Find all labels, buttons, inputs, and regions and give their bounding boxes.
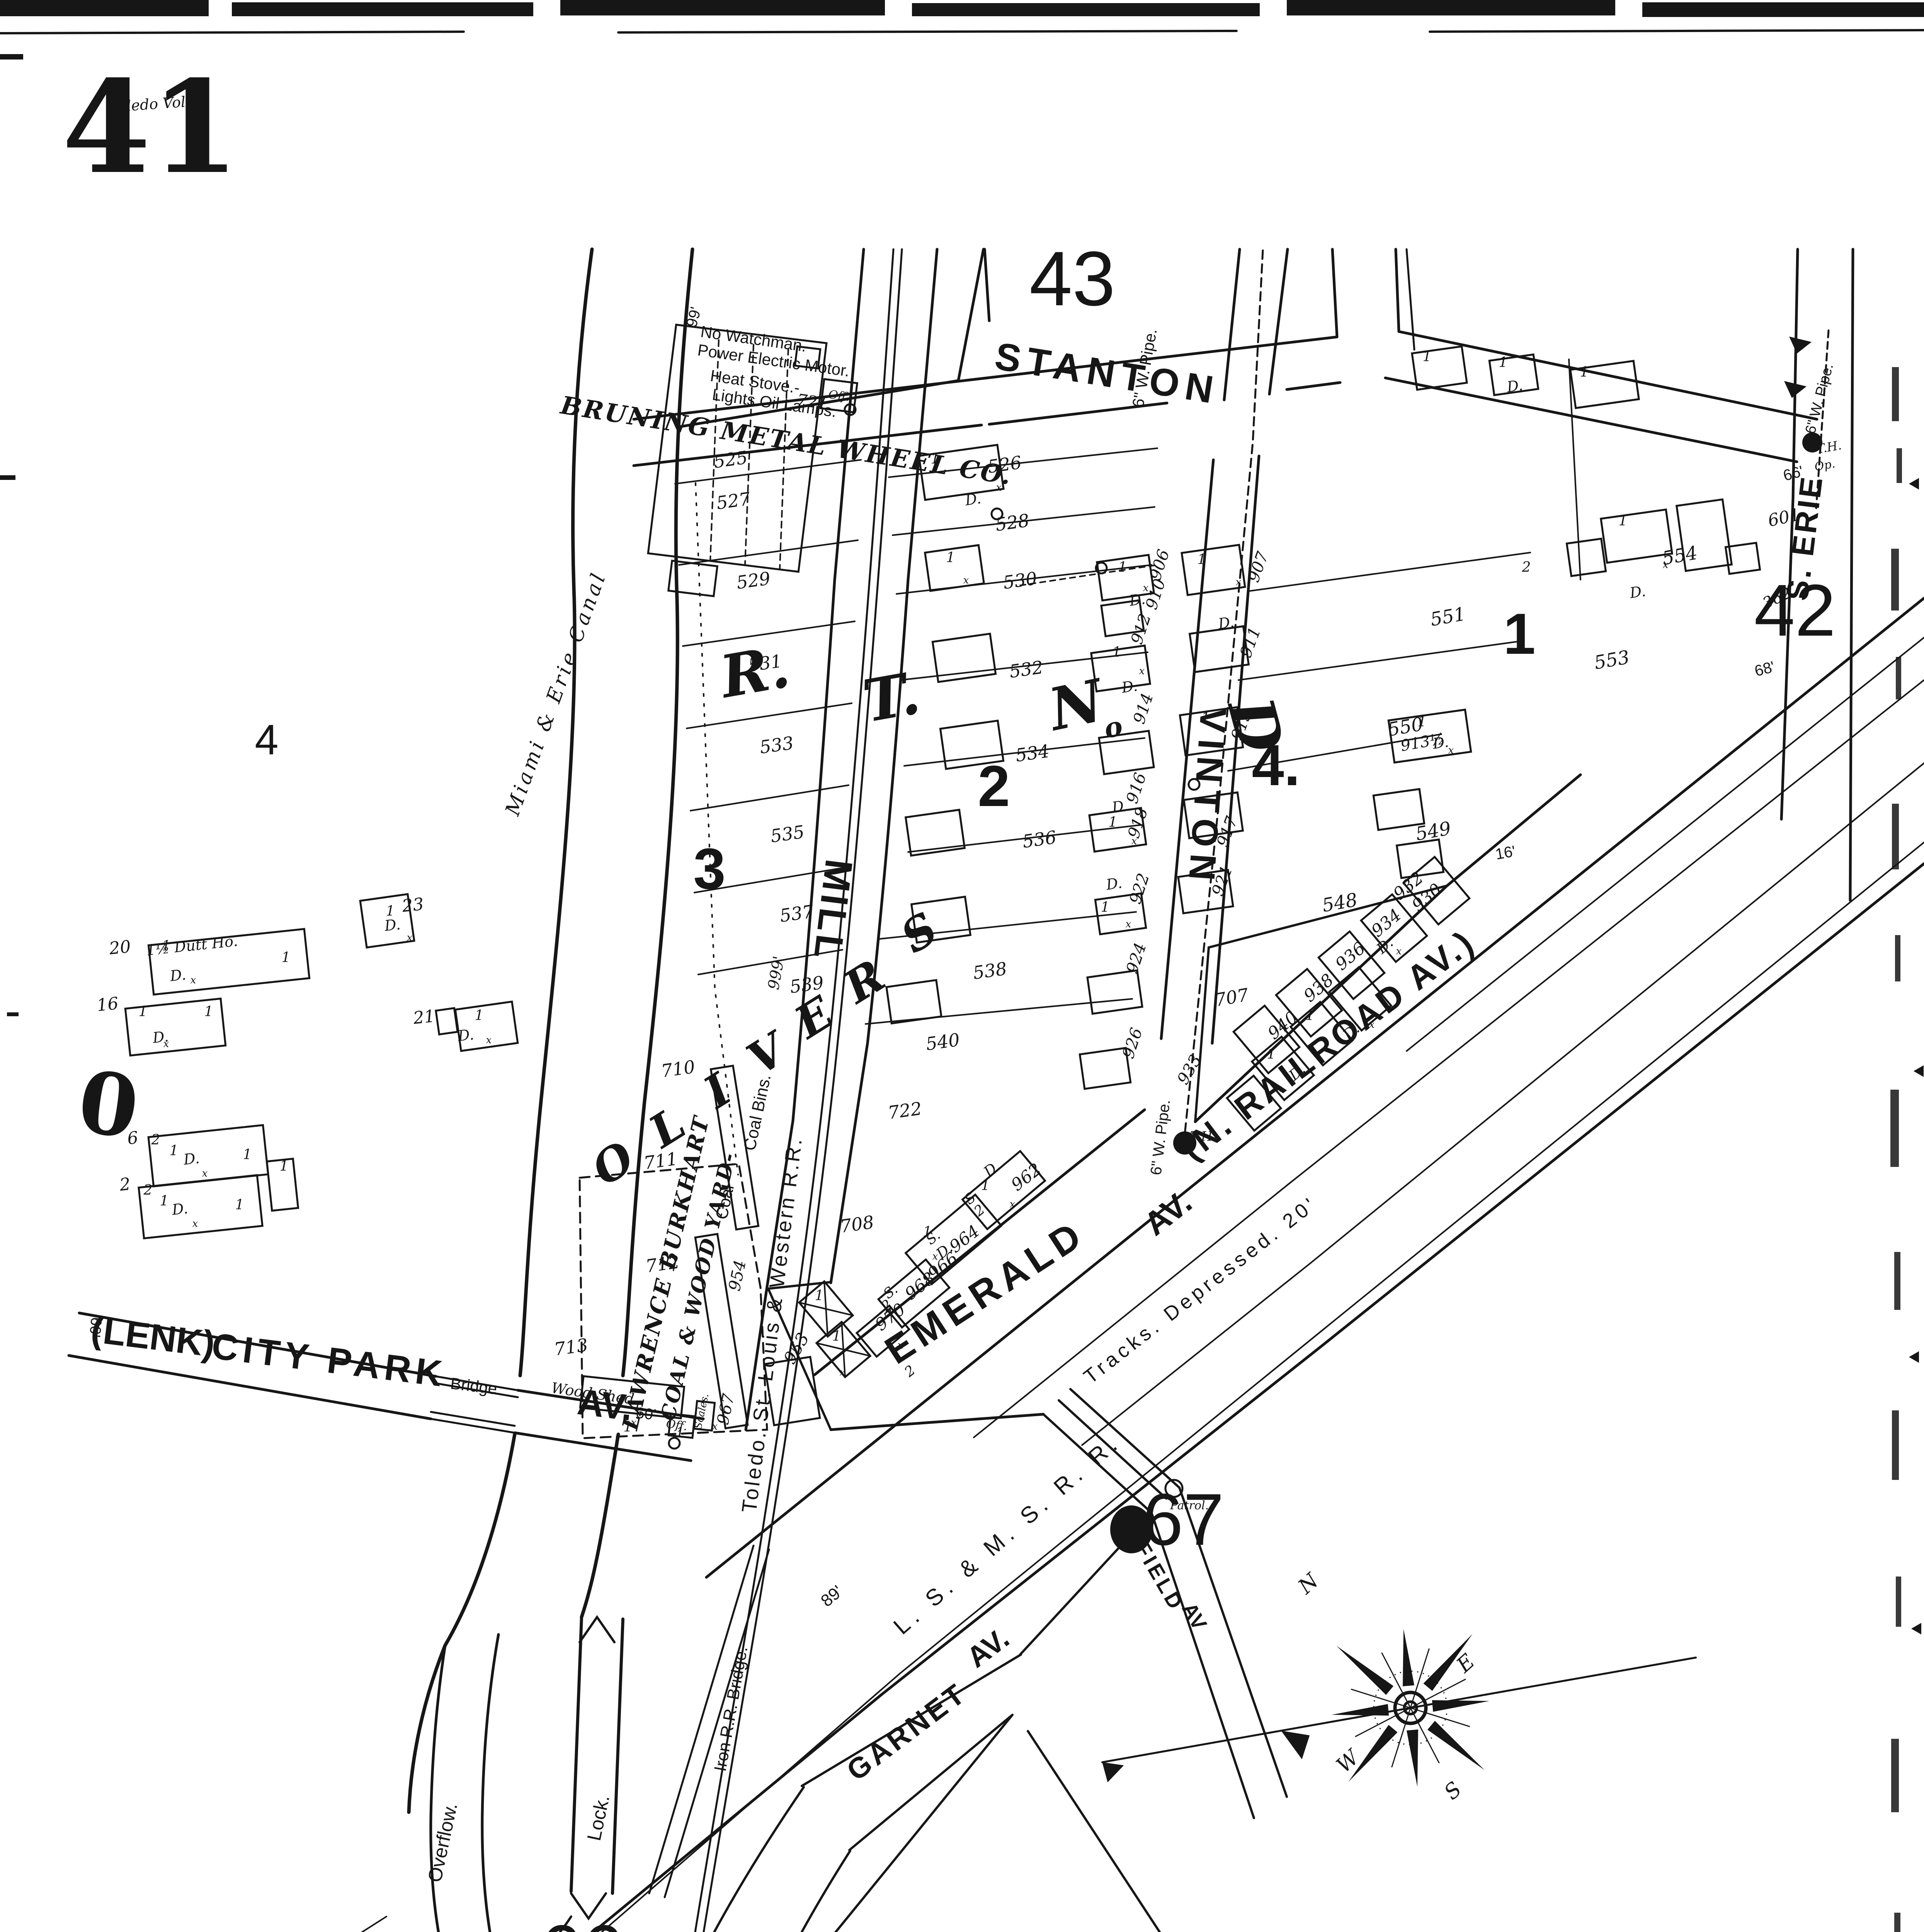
sheet-number-41: 41 <box>62 52 239 202</box>
story-count-1: 1 <box>931 451 940 467</box>
dwelling-d12: D. <box>169 966 187 985</box>
house-912: 912 <box>1127 611 1155 646</box>
window-x-mark: x <box>1126 918 1131 930</box>
window-x-mark: x <box>1010 1199 1016 1210</box>
sheet-ref-66: 66 <box>540 1910 624 1932</box>
map-line <box>1569 359 1580 580</box>
map-line <box>571 1617 614 1918</box>
dwelling-d7: D. <box>1431 733 1450 752</box>
lot-538: 538 <box>972 958 1008 983</box>
dim-89: 89' <box>817 1582 846 1611</box>
dutt-house: 1½ Dutt Ho. <box>145 932 238 959</box>
story-count-1: 1 <box>1267 1046 1276 1062</box>
scan-edge-artifact <box>912 3 1260 16</box>
map-line <box>1385 378 1797 462</box>
dwelling-d17: D. <box>171 1200 189 1218</box>
street-garnet: GARNET <box>840 1676 973 1787</box>
map-line <box>1020 565 1157 585</box>
window-x-mark: x <box>932 1251 938 1262</box>
map-line <box>1407 638 1924 1051</box>
scan-edge-artifact <box>1896 1577 1901 1627</box>
story-count-1: 1 <box>1418 714 1427 730</box>
scan-edge-artifact <box>0 54 23 60</box>
window-x-mark: x <box>191 975 196 986</box>
map-line <box>1396 249 1399 332</box>
story-count-1: 1 <box>1118 560 1127 575</box>
story-count-1: 1 <box>1499 355 1508 371</box>
window-x-mark: x <box>1448 745 1454 756</box>
margin-arrow-icon <box>1914 1065 1924 1077</box>
map-line <box>657 249 893 1932</box>
building-footprint <box>436 1008 458 1034</box>
building-footprint <box>1567 539 1606 576</box>
canal-overflow: Overflow. <box>424 1801 461 1884</box>
story-count-1: 1 <box>832 1328 841 1344</box>
story-count-1: 1 <box>204 1004 213 1020</box>
map-line <box>1850 249 1853 900</box>
building-footprint <box>1412 346 1467 389</box>
block-number-2: 2 <box>978 753 1010 818</box>
house-922: 922 <box>1126 871 1153 906</box>
dwelling-d15: D. <box>457 1026 475 1044</box>
small-circle-symbol <box>669 1438 680 1449</box>
house-962: 962 <box>1007 1160 1045 1195</box>
story-count-1: 1 <box>1580 364 1589 380</box>
house-924: 924 <box>1123 940 1150 976</box>
lot-548: 548 <box>1320 889 1359 917</box>
lot-722: 722 <box>887 1098 923 1123</box>
house-20: 20 <box>108 937 132 959</box>
scan-edge-artifact <box>0 0 209 16</box>
window-x-mark: x <box>1236 577 1242 588</box>
dwelling-d3: D. <box>1120 677 1139 696</box>
dim-68ft: 68' <box>1753 658 1777 680</box>
dim-16ft: 16' <box>1494 843 1517 863</box>
scan-edge-artifact <box>1891 1739 1899 1812</box>
street-city-park: CITY PARK <box>209 1325 449 1395</box>
building-footprint <box>1087 970 1142 1014</box>
map-line <box>1399 332 1817 419</box>
house-938: 938 <box>1300 970 1337 1006</box>
scan-edge-artifact <box>0 475 15 480</box>
dwelling-d11: D. <box>980 1157 1003 1181</box>
story-count-1: 1 <box>282 950 291 966</box>
map-reference-dot <box>1802 432 1822 452</box>
lot-708: 708 <box>839 1211 875 1237</box>
map-line <box>985 249 989 321</box>
lot-527: 527 <box>715 488 752 514</box>
margin-arrow-icon <box>1911 1623 1921 1634</box>
house-6: 6 <box>126 1128 139 1149</box>
scan-edge-artifact <box>1892 804 1899 869</box>
lot-713: 713 <box>553 1334 589 1360</box>
block-letter-N: N <box>1042 666 1111 745</box>
dim-999: 999' <box>765 955 788 991</box>
hydrant-flag-icon <box>1789 337 1812 354</box>
rr-toledo-stl-western: Toledo. St. Louis & Western R.R. <box>738 1135 807 1514</box>
story-count-2: 2 <box>1522 560 1531 575</box>
lot-532: 532 <box>1008 656 1045 682</box>
lot-711: 711 <box>643 1148 679 1173</box>
story-count-1: 1 <box>162 938 171 954</box>
margin-arrow-icon <box>1909 1351 1919 1363</box>
story-count-2: 2 <box>143 1182 153 1198</box>
hydrant-op-erie: Op. <box>1813 457 1836 474</box>
scan-edge-artifact <box>1894 1252 1900 1310</box>
scan-edge-artifact <box>1897 448 1902 483</box>
dwelling-d6: D. <box>1105 874 1123 893</box>
story-count-1: 1 <box>475 1008 484 1024</box>
dwelling-d1: D. <box>964 490 982 509</box>
scan-edge-artifact <box>232 2 533 16</box>
map-line <box>0 30 1924 33</box>
story-count-1: 1 <box>139 1004 148 1020</box>
building-footprint <box>886 980 941 1023</box>
scan-edge-artifact <box>1892 367 1899 421</box>
story-count-1: 1 <box>243 1147 252 1163</box>
dim-60ft-w: 60' <box>86 1316 105 1338</box>
lot-533: 533 <box>759 732 795 758</box>
map-line <box>571 1617 623 1893</box>
scan-edge-artifact <box>7 1012 19 1016</box>
lot-553: 553 <box>1592 646 1631 674</box>
lot-534: 534 <box>1014 740 1051 766</box>
compass-direction-w: W <box>1332 1744 1365 1777</box>
sanborn-map-canvas: 41Toledo Vol.143426667STANTONVINTONAV.S.… <box>0 0 1924 1932</box>
pipe-6in-erie: 6" W. Pipe. <box>1802 362 1837 435</box>
dwelling-d5: D. <box>1111 797 1129 816</box>
story-count-1: 1 <box>1113 645 1121 660</box>
map-reference-dot <box>1110 1505 1153 1553</box>
window-x-mark: x <box>1131 835 1137 847</box>
map-line <box>802 1655 1021 1850</box>
story-count-1: 1 <box>1423 349 1432 365</box>
lot-707: 707 <box>1213 984 1250 1011</box>
story-count-1: 1 <box>386 903 395 919</box>
story-count-2: 2 <box>151 1132 160 1148</box>
house-911: 911 <box>1236 624 1264 660</box>
rr-lsms: L. S. & M. S. R. R. <box>888 1428 1126 1639</box>
house-914: 914 <box>1130 691 1157 726</box>
scan-edge-artifact <box>1890 1090 1899 1167</box>
house-21: 21 <box>412 1006 436 1028</box>
rr-tracks-depressed: Tracks. Depressed. 20' <box>1080 1192 1322 1388</box>
map-line <box>1102 1658 1696 1762</box>
story-count-1: 1 <box>1198 552 1206 568</box>
canal-name: Miami & Erie Canal <box>501 568 611 819</box>
window-x-mark: x <box>996 482 1002 493</box>
window-x-mark: x <box>1276 1083 1282 1094</box>
window-x-mark: x <box>1139 665 1145 677</box>
scan-edge-artifact <box>1895 935 1900 981</box>
house-2: 2 <box>118 1174 131 1195</box>
window-x-mark: x <box>1143 582 1149 594</box>
compass-rose: NEWS <box>1102 1568 1489 1804</box>
lot-525: 525 <box>713 447 749 472</box>
story-count-1: 1 <box>1306 1008 1315 1024</box>
map-line <box>815 1110 1145 1375</box>
story-count-1: 1 <box>1101 900 1110 915</box>
pipe-6in-vinton: 6" W. Pipe. <box>1147 1099 1174 1176</box>
map-line <box>706 598 1924 1577</box>
window-x-mark: x <box>963 575 969 586</box>
window-x-mark: x <box>1396 946 1402 957</box>
story-count-1: 1 <box>1619 513 1628 529</box>
block-number-4: 4 <box>255 716 278 764</box>
scan-edge-artifact <box>1892 1410 1899 1480</box>
story-count-1: 1 <box>160 1193 169 1209</box>
block-number-3: 3 <box>693 836 725 901</box>
dwelling-d4: D. <box>1217 613 1235 632</box>
lot-536: 536 <box>1021 827 1058 852</box>
lot-535: 535 <box>769 821 806 847</box>
canal-bridge: Bridge. <box>449 1374 503 1398</box>
dwelling-d16: D. <box>182 1150 201 1168</box>
story-count-1: 1 <box>280 1158 289 1174</box>
margin-arrow-icon <box>1909 478 1919 490</box>
story-count-1: 1 <box>981 1178 990 1194</box>
map-line <box>665 249 902 1932</box>
compass-direction-n: N <box>1293 1568 1324 1599</box>
block-letter-No: o <box>1101 710 1125 745</box>
map-line <box>431 1645 448 1932</box>
house-926: 926 <box>1119 1026 1146 1061</box>
lot-549: 549 <box>1414 818 1453 845</box>
house-16: 16 <box>96 993 119 1015</box>
block-number-1: 1 <box>1503 601 1535 666</box>
map-line <box>751 1715 1337 1932</box>
lot-526: 526 <box>987 452 1023 477</box>
story-count-1: 1 <box>946 550 955 566</box>
map-line <box>482 1634 498 1932</box>
map-line <box>35 1917 603 1932</box>
lot-710: 710 <box>660 1056 696 1082</box>
window-x-mark: x <box>631 1417 637 1429</box>
rr-iron-bridge: Iron R.R. Bridge. <box>711 1645 751 1773</box>
window-x-mark: x <box>163 1038 169 1050</box>
house-906: 906 <box>1146 547 1173 582</box>
lot-551: 551 <box>1429 603 1467 631</box>
story-count-1: 1 <box>235 1197 244 1213</box>
window-x-mark: x <box>840 1367 845 1378</box>
map-line <box>974 680 1924 1437</box>
house-936: 936 <box>1332 938 1369 974</box>
map-line <box>831 1414 1043 1430</box>
lot-954: 954 <box>725 1259 750 1293</box>
coal-bins-upper: Coal Bins. <box>740 1073 775 1152</box>
story-count-1: 1 <box>1109 815 1118 830</box>
window-x-mark: x <box>486 1034 492 1046</box>
map-line <box>409 1434 515 1812</box>
story-count-1: 1 <box>1201 710 1210 726</box>
scan-edge-artifact <box>1642 2 1924 17</box>
scan-edge-artifact <box>560 0 885 15</box>
house-907: 907 <box>1244 549 1272 585</box>
scan-edge-artifact <box>1894 1913 1900 1932</box>
lot-529: 529 <box>735 568 772 593</box>
story-count-1: 1 <box>923 1224 932 1240</box>
block-letter-T: T. <box>858 659 925 736</box>
story-count-1: 1 <box>170 1143 179 1159</box>
story-count-1: 1 <box>815 1288 824 1304</box>
canal-lock: Lock. <box>583 1793 614 1843</box>
letter-O: O <box>583 1131 644 1196</box>
lot-539: 539 <box>789 972 825 997</box>
lot-528: 528 <box>994 510 1031 535</box>
scan-edge-artifact <box>1896 657 1901 699</box>
street-stanton: STANTON <box>992 334 1222 412</box>
scan-edge-artifact <box>1891 549 1899 611</box>
sheet-ref-43: 43 <box>1029 236 1115 322</box>
street-vinton-av: AV. <box>1137 1184 1199 1243</box>
lot-530: 530 <box>1002 568 1038 593</box>
map-line <box>590 1787 850 1932</box>
window-x-mark: x <box>898 1340 903 1351</box>
street-lenk: (LENK) <box>89 1309 217 1365</box>
map-line <box>1332 249 1337 337</box>
window-x-mark: x <box>1663 559 1669 571</box>
lot-540: 540 <box>925 1029 961 1054</box>
window-x-mark: x <box>202 1168 208 1179</box>
window-x-mark: x <box>1369 1019 1375 1031</box>
compass-direction-s: S <box>1439 1777 1466 1804</box>
scan-edge-artifact <box>1287 0 1615 15</box>
street-garnet-av: AV. <box>961 1622 1015 1674</box>
window-x-mark: x <box>192 1218 198 1230</box>
map-line <box>582 1434 618 1617</box>
dwelling-d20: D. <box>1506 376 1524 395</box>
dwelling-d8: D. <box>1628 582 1647 601</box>
map-reference-dot <box>1173 1131 1196 1155</box>
letter-V: V <box>738 1021 798 1085</box>
sanborn-map-page: 41 41Toledo Vol.143426667STANTONVINTONAV… <box>0 0 1924 1932</box>
patrol-box: Patrol. <box>1170 1499 1209 1512</box>
window-x-mark: x <box>407 932 413 944</box>
window-x-mark: x <box>712 1421 718 1432</box>
house-23: 23 <box>401 894 425 916</box>
